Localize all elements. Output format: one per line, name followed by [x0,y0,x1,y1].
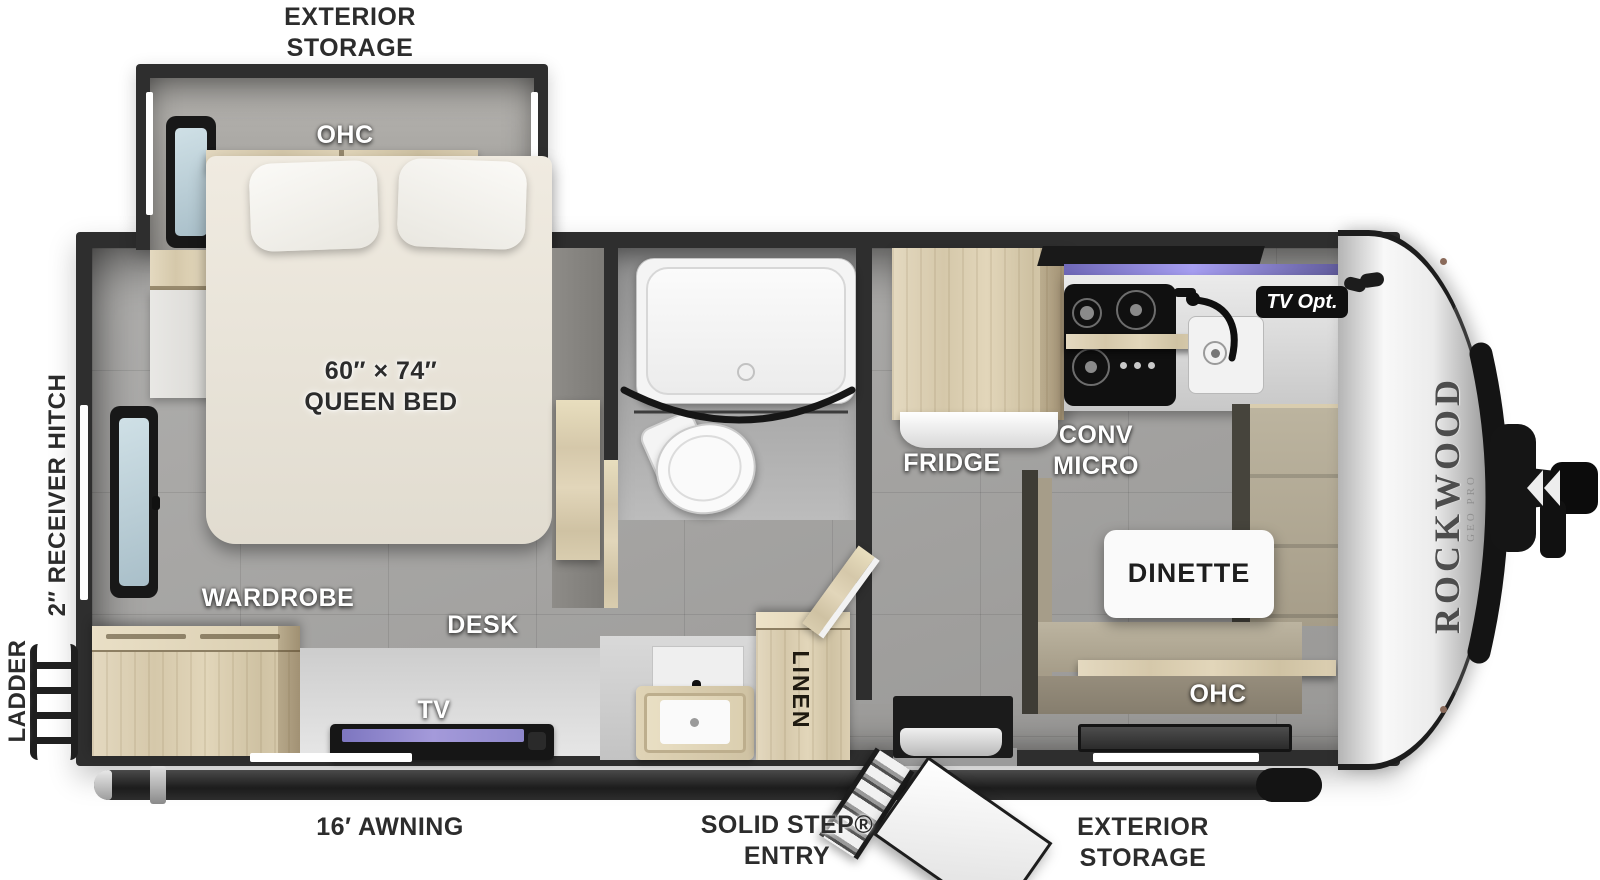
label-awning: 16′ AWNING [290,812,490,843]
hitch-chevron-2 [1544,470,1560,506]
cap-rivet-top [1440,258,1447,265]
label-tv: TV [404,695,464,726]
propane-cover [1490,424,1536,552]
bathtub [636,258,856,404]
bottom-wall-slot-right [1093,753,1259,762]
dinette-table: DINETTE [1104,530,1274,618]
rear-wall-window-slot [80,405,88,600]
vanity-sink [636,686,754,760]
rear-window-icon [110,406,158,598]
fridge-cabinet [892,248,1064,420]
dinette-label: DINETTE [1128,557,1251,590]
label-linen: LINEN [789,630,815,750]
label-wardrobe: WARDROBE [168,583,388,614]
label-queen-bed: 60″ × 74″ QUEEN BED [248,356,514,418]
counter-led-strip [1064,264,1350,275]
dinette-bench-left-back [1022,470,1038,714]
range-hood [1037,246,1265,266]
label-solid-step-entry: SOLID STEP® ENTRY [667,810,907,872]
awning-roll [94,770,1322,800]
awning-roll-end-right [1256,768,1322,802]
label-fridge: FRIDGE [872,448,1032,479]
entry-step-tray [900,728,1002,756]
ladder-icon [30,644,78,760]
dinette-ohc-shelf [1078,660,1336,676]
bath-wall-right [856,248,872,700]
label-receiver-hitch: 2″ RECEIVER HITCH [43,335,71,655]
counter-extension-flap [1066,334,1208,349]
hitch-jack [1540,500,1566,558]
dinette-window [1078,724,1292,752]
hitch-coupler [1550,462,1598,514]
cap-rivet-bottom [1440,706,1447,713]
label-tv-opt: TV Opt. [1266,291,1337,314]
awning-endcap-left [94,770,112,800]
pillow-right [397,158,528,250]
label-exterior-storage-bottom: EXTERIOR STORAGE [1023,812,1263,874]
label-exterior-storage-top: EXTERIOR STORAGE [230,2,470,64]
pillow-left [249,160,380,252]
label-ladder: LADDER [3,621,29,761]
brand-logo: ROCKWOOD [1426,335,1470,675]
hitch-tongue [1530,468,1598,508]
hitch-chevron-1 [1527,470,1543,506]
brand-sub-logo: GEO PRO [1465,448,1479,568]
awning-bracket [150,766,166,804]
kitchen-sink [1188,316,1264,394]
label-desk: DESK [423,610,543,641]
kitchen-tap-handle [1174,288,1196,297]
label-bedroom-ohc: OHC [285,120,405,151]
label-dinette-ohc: OHC [1158,679,1278,710]
bottom-wall-slot-left [250,753,412,762]
label-conv-micro: CONV MICRO [1016,420,1176,482]
tv-opt-badge: TV Opt. [1256,286,1348,318]
wardrobe-cabinet [92,626,300,756]
bed-side-cabinet [556,400,600,560]
bath-wall-left-trim [604,460,618,608]
floorplan-stage: DINETTE ROCKWOOD GEO PRO EXTE [0,0,1600,880]
slideout-window-slot-left [146,92,153,215]
